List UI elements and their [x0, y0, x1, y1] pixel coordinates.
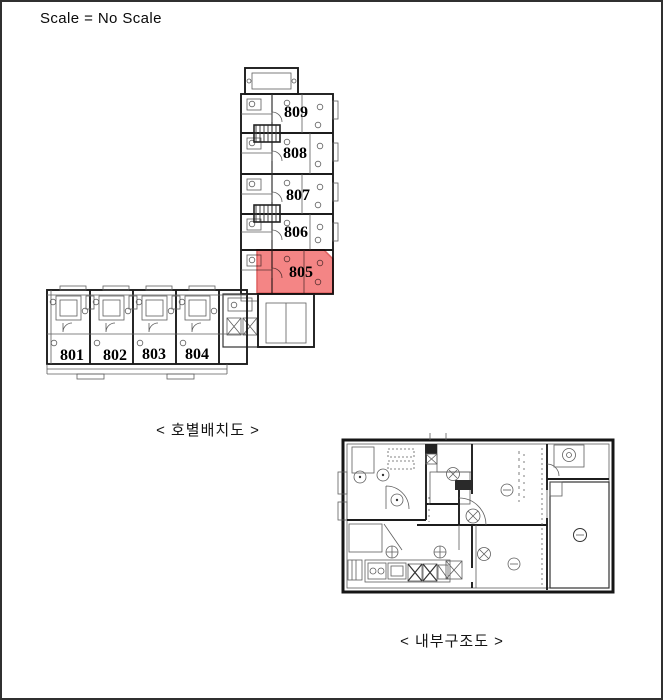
- detail-room-bottom: [459, 525, 520, 588]
- document-page: Scale = No Scale: [0, 0, 663, 700]
- unit-label-805: 805: [289, 264, 313, 281]
- service-core-upper: [254, 125, 280, 142]
- unit-labels: 809 808 807 806 805 801 802 803 804: [60, 104, 313, 364]
- detail-entry-core: [426, 444, 472, 522]
- detail-bathroom: [547, 445, 609, 479]
- service-core-lower: [254, 205, 280, 222]
- detail-utility: [348, 524, 402, 580]
- unit-label-803: 803: [142, 346, 166, 363]
- detail-bedroom: [347, 444, 426, 520]
- detail-balcony: [550, 482, 609, 588]
- unit-bay-802: [90, 296, 133, 346]
- detail-living-room: [417, 444, 547, 590]
- caption-detail-plan: < 내부구조도 >: [392, 630, 512, 651]
- unit-label-807: 807: [286, 187, 310, 204]
- unit-label-809: 809: [284, 104, 308, 121]
- unit-label-801: 801: [60, 347, 84, 364]
- unit-label-802: 802: [103, 347, 127, 364]
- site-plan: 809 808 807 806 805 801 802 803 804: [47, 68, 338, 379]
- caption-site-plan: < 호별배치도 >: [142, 419, 274, 440]
- unit-bay-804: [176, 296, 219, 346]
- detail-kitchen: [365, 560, 462, 582]
- unit-label-808: 808: [283, 145, 307, 162]
- detail-plan-drawing: [338, 433, 613, 592]
- unit-bay-801: [47, 296, 90, 346]
- unit-label-804: 804: [185, 346, 209, 363]
- floor-plan-canvas: 809 808 807 806 805 801 802 803 804: [2, 2, 663, 700]
- unit-bay-803: [133, 296, 176, 346]
- junction-stair-block: [223, 294, 314, 347]
- horizontal-wing: [47, 286, 247, 379]
- unit-label-806: 806: [284, 224, 308, 241]
